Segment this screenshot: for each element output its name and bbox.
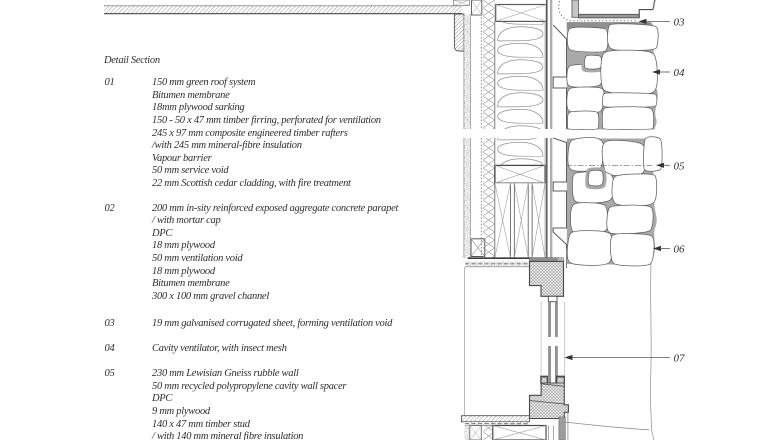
svg-text:06: 06 [674, 244, 686, 256]
svg-text:03: 03 [674, 16, 686, 28]
svg-text:05: 05 [674, 160, 686, 172]
svg-text:07: 07 [674, 353, 686, 365]
svg-text:04: 04 [674, 67, 686, 79]
